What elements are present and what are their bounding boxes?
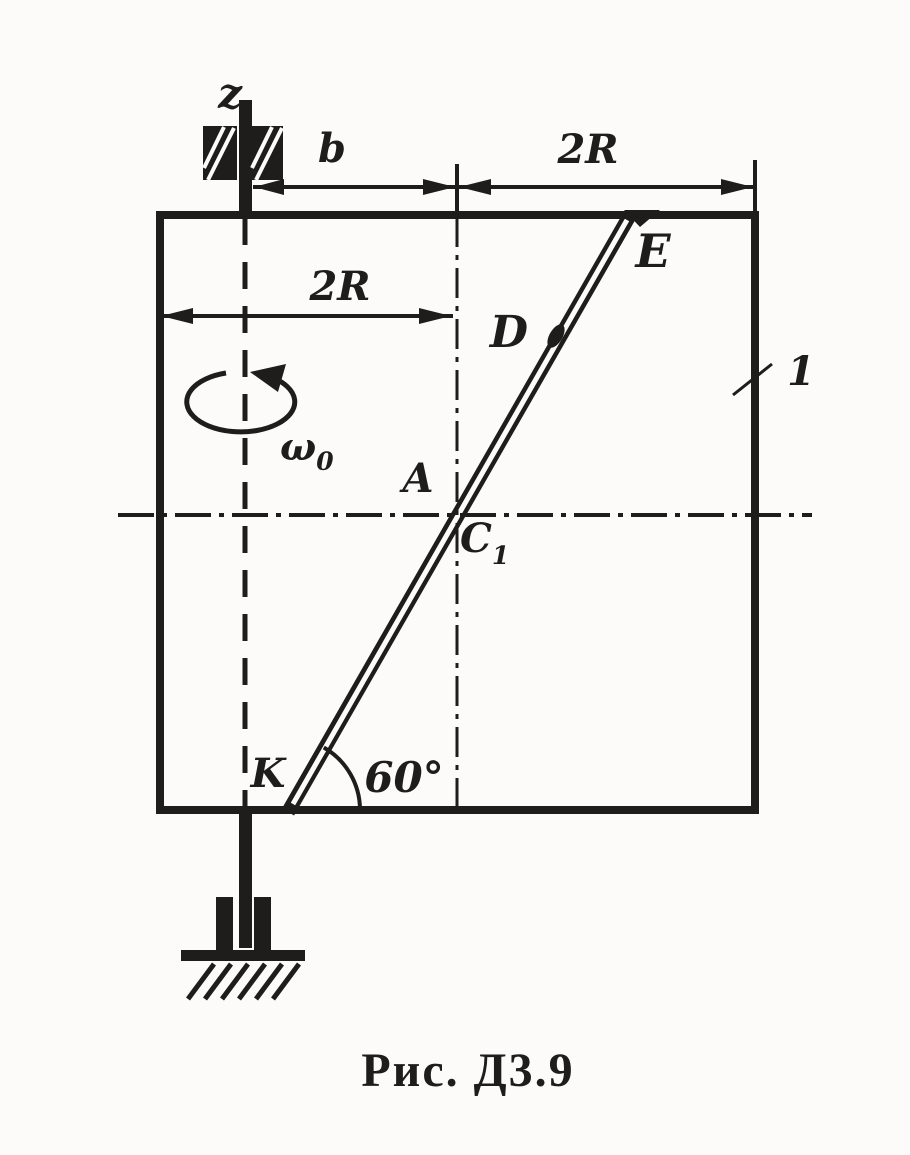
label-angle-60: 60° [364, 753, 443, 802]
label-dim-b: b [318, 125, 346, 172]
figure-caption: Рис. Д3.9 [361, 1044, 574, 1097]
label-point-A: A [398, 455, 433, 502]
label-dim-2R-left: 2R [308, 263, 370, 310]
label-point-C-base: C [460, 515, 492, 562]
label-point-K: K [250, 750, 288, 797]
ground-line [181, 950, 305, 961]
axis-shaft-bottom [239, 808, 252, 948]
bearing-bottom-right-block [254, 897, 271, 954]
label-point-E: E [633, 224, 671, 278]
label-point-D: D [488, 307, 528, 358]
label-dim-2R-top: 2R [556, 126, 618, 173]
label-omega-sub: 0 [316, 447, 334, 476]
label-axis-z: z [217, 69, 243, 118]
label-omega-base: ω [280, 424, 316, 469]
label-body-1: 1 [787, 348, 815, 395]
figure-canvas: z b 2R 2R ω0 A C1 D E K 60° 1 Рис. Д3.9 [0, 0, 910, 1155]
figure-page: z b 2R 2R ω0 A C1 D E K 60° 1 Рис. Д3.9 [0, 0, 910, 1155]
bearing-bottom-left-block [216, 897, 233, 954]
label-point-C-sub: 1 [492, 541, 509, 570]
